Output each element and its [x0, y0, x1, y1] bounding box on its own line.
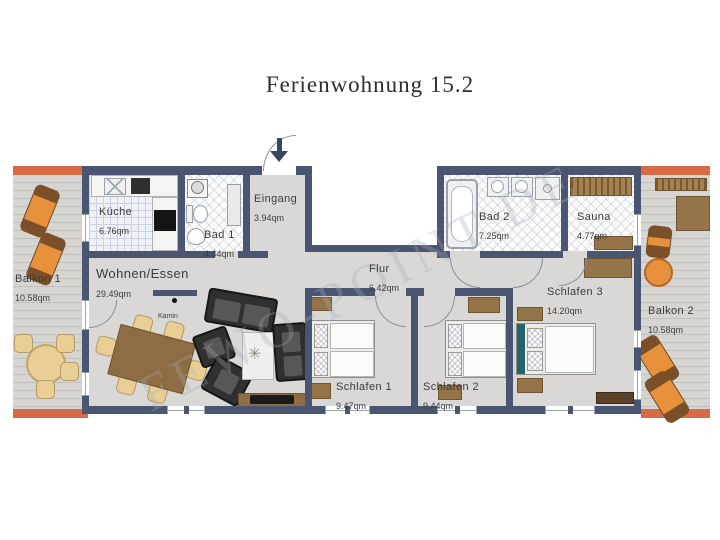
- room-label-bad2: Bad 2 7.25qm: [479, 206, 510, 244]
- kamin-label: Kamin: [158, 304, 178, 323]
- entry-arrow-icon: [266, 138, 292, 166]
- stove: [131, 178, 150, 194]
- toilet-tank: [186, 205, 193, 223]
- balcony-chair: [56, 334, 75, 353]
- page-title: Ferienwohnung 15.2: [20, 72, 720, 98]
- room-label-eingang: Eingang 3.94qm: [254, 188, 297, 226]
- window-mullion: [568, 406, 573, 414]
- washing-machine-door: [191, 181, 204, 194]
- nightstand: [309, 383, 331, 399]
- bathroom-sink: [187, 228, 205, 245]
- plant: ✳: [248, 344, 261, 364]
- shower-bad1: [227, 184, 241, 226]
- room-label-bad1: Bad 1 4.44qm: [204, 224, 235, 262]
- balcony-door: [634, 214, 641, 246]
- room-label-balkon1: Balkon 1 10.58qm: [15, 268, 61, 306]
- room-label-balkon2: Balkon 2 10.58qm: [648, 300, 694, 338]
- floor-plan: Ferienwohnung 15.2 FEWO-POINT.DE: [0, 0, 720, 540]
- balkon2-edge-top: [641, 166, 710, 175]
- balcony-table: [676, 196, 710, 231]
- bench: [596, 392, 634, 404]
- folded-lounger: [645, 225, 673, 260]
- sideboard: [584, 258, 632, 278]
- balcony-door: [634, 370, 641, 400]
- balcony-door: [82, 300, 89, 330]
- bathtub-inner: [451, 186, 473, 242]
- balcony-chair: [60, 362, 79, 381]
- nightstand: [517, 378, 543, 393]
- bed-schlafen1: [311, 320, 375, 378]
- sink-basin: [515, 180, 528, 193]
- nightstand: [517, 307, 543, 321]
- tv: [250, 395, 294, 404]
- nightstand: [309, 297, 332, 311]
- bed-schlafen2: [445, 320, 507, 378]
- sink-basin: [491, 180, 504, 193]
- bed-schlafen3: [516, 323, 596, 375]
- window: [634, 330, 641, 348]
- balcony-chair: [36, 380, 55, 399]
- room-label-schlafen1: Schlafen 1 9.47qm: [336, 376, 392, 414]
- room-label-wohnen-essen: Wohnen/Essen 29.49qm: [96, 264, 189, 302]
- room-label-flur: Flur 6.42qm: [369, 258, 399, 296]
- room-label-sauna: Sauna 4.77qm: [577, 206, 611, 244]
- room-label-kueche: Küche 6.76qm: [99, 201, 132, 239]
- toilet-bowl: [193, 205, 208, 223]
- shower-drain: [543, 184, 552, 193]
- oven: [154, 210, 176, 231]
- window: [82, 372, 89, 396]
- balcony-chair: [14, 334, 33, 353]
- kitchen-sink: [104, 178, 126, 195]
- bed-headboard: [517, 324, 525, 374]
- room-label-schlafen3: Schlafen 3 14.20qm: [547, 281, 603, 319]
- balcony-bench: [655, 178, 707, 191]
- room-label-schlafen2: Schlafen 2 9.44qm: [423, 376, 479, 414]
- sauna-bench-top: [570, 177, 632, 196]
- wardrobe: [468, 297, 500, 313]
- window-mullion: [184, 406, 189, 414]
- balkon1-edge-top: [13, 166, 88, 175]
- window: [82, 214, 89, 242]
- parasol: [644, 258, 673, 287]
- balkon1-edge-bottom: [13, 409, 88, 418]
- exterior-notch: [312, 175, 437, 245]
